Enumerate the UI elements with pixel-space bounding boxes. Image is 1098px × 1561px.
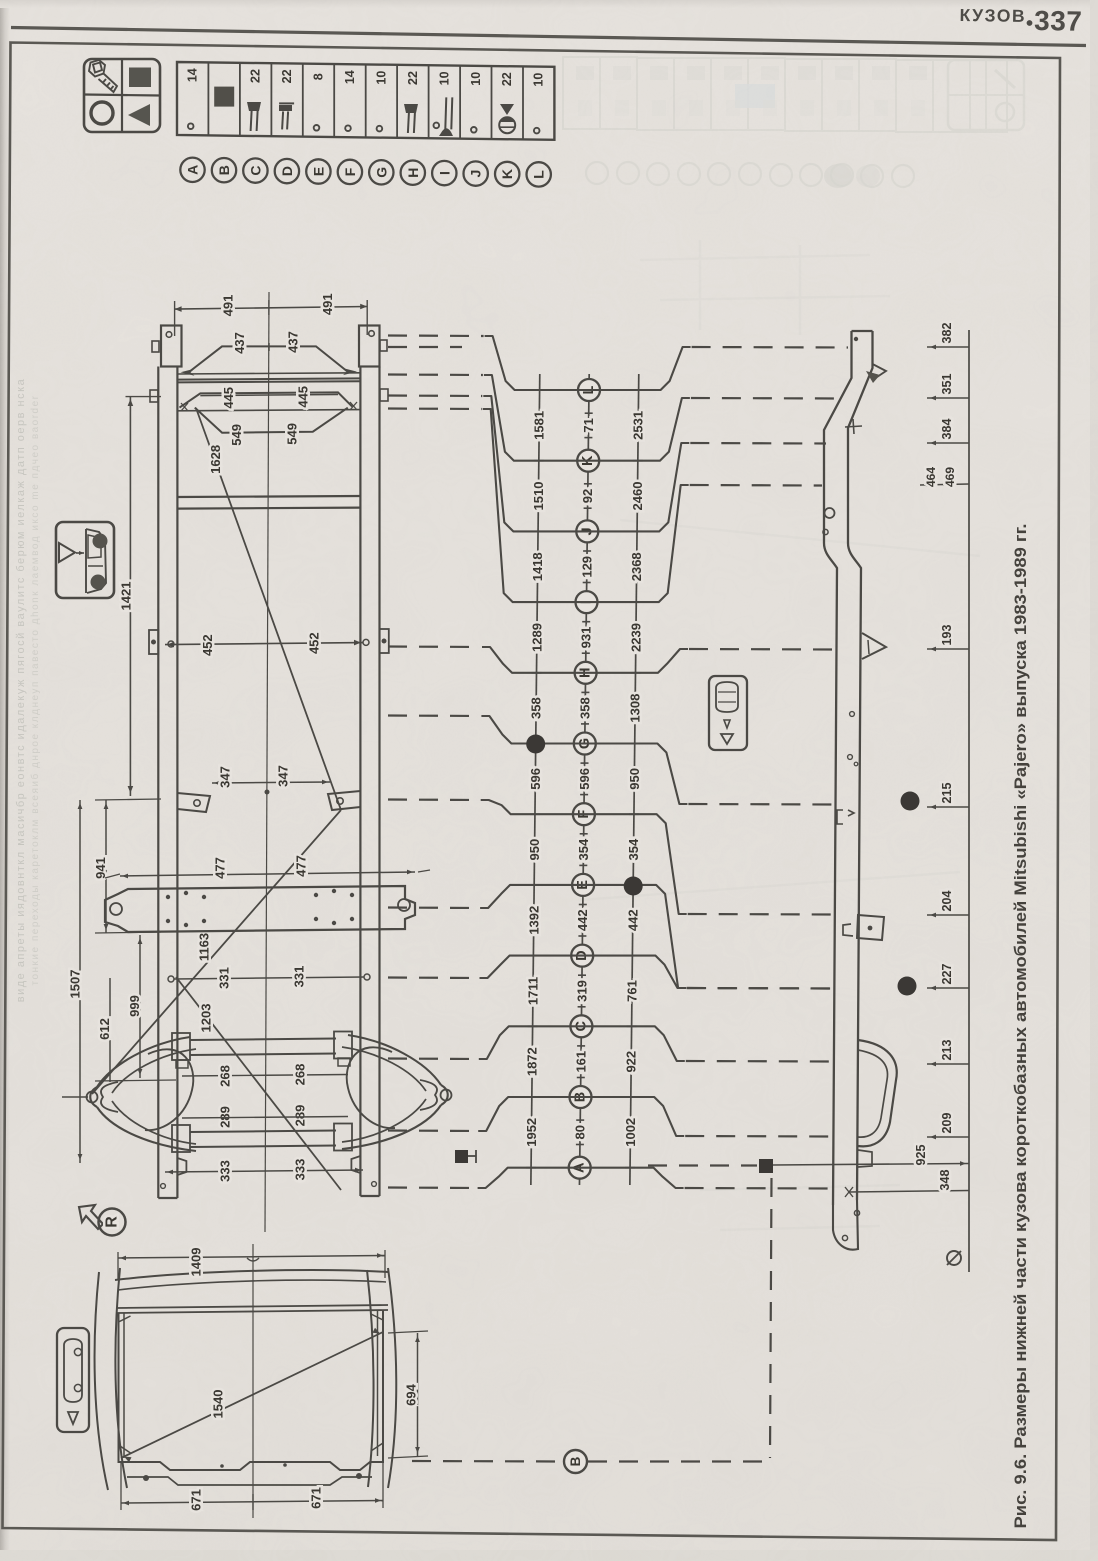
svg-text:1308: 1308 [628, 694, 643, 723]
svg-text:92: 92 [580, 489, 595, 503]
svg-text:549: 549 [229, 424, 244, 446]
svg-text:289: 289 [293, 1105, 308, 1127]
svg-text:71: 71 [581, 418, 596, 432]
svg-text:452: 452 [200, 634, 215, 656]
svg-text:464: 464 [924, 467, 938, 487]
svg-text:209: 209 [940, 1113, 954, 1134]
svg-text:477: 477 [213, 857, 228, 879]
svg-text:437: 437 [286, 331, 301, 353]
svg-text:80: 80 [573, 1125, 588, 1139]
svg-text:1711: 1711 [526, 977, 541, 1005]
svg-text:КУЗОВ: КУЗОВ [959, 5, 1026, 26]
svg-text:347: 347 [276, 765, 291, 787]
svg-text:671: 671 [309, 1487, 324, 1509]
svg-text:1510: 1510 [531, 482, 546, 511]
svg-text:227: 227 [940, 964, 954, 985]
svg-text:2531: 2531 [631, 411, 646, 440]
svg-text:10: 10 [374, 71, 388, 85]
svg-text:1540: 1540 [211, 1390, 226, 1419]
svg-text:1392: 1392 [526, 906, 541, 935]
svg-text:437: 437 [232, 332, 247, 354]
svg-text:319: 319 [574, 980, 589, 1002]
svg-text:10: 10 [532, 73, 546, 87]
svg-text:931: 931 [579, 627, 594, 649]
svg-text:694: 694 [404, 1383, 419, 1405]
svg-text:161: 161 [573, 1051, 588, 1073]
svg-text:382: 382 [940, 323, 954, 344]
svg-text:671: 671 [189, 1489, 204, 1511]
svg-text:22: 22 [500, 72, 514, 86]
svg-text:469: 469 [943, 467, 957, 487]
svg-text:331: 331 [292, 966, 307, 988]
svg-text:B: B [568, 1456, 583, 1466]
svg-text:1507: 1507 [68, 970, 83, 999]
svg-text:268: 268 [218, 1065, 233, 1087]
svg-text:B: B [216, 165, 232, 175]
svg-text:1289: 1289 [529, 623, 544, 652]
svg-text:2460: 2460 [630, 482, 645, 511]
svg-text:I: I [436, 171, 452, 175]
svg-text:1418: 1418 [530, 552, 545, 581]
svg-text:999: 999 [127, 995, 142, 1017]
svg-text:193: 193 [940, 625, 954, 646]
svg-text:H: H [405, 168, 421, 178]
svg-text:950: 950 [627, 768, 642, 790]
svg-text:K: K [499, 169, 515, 179]
svg-text:E: E [310, 167, 326, 176]
svg-text:333: 333 [218, 1160, 233, 1182]
svg-text:596: 596 [528, 768, 543, 790]
svg-text:1581: 1581 [532, 411, 547, 440]
svg-text:тонкие переходы каретоклм всея: тонкие переходы каретоклм всеяиб днрое к… [29, 395, 41, 986]
svg-text:442: 442 [575, 909, 590, 931]
svg-text:2368: 2368 [629, 552, 644, 581]
svg-text:477: 477 [294, 855, 309, 877]
svg-text:D: D [279, 166, 295, 176]
svg-text:C: C [247, 166, 263, 176]
svg-text:445: 445 [221, 387, 236, 409]
svg-text:14: 14 [343, 70, 357, 84]
svg-text:452: 452 [307, 632, 322, 654]
svg-text:354: 354 [626, 838, 641, 860]
svg-text:129: 129 [579, 556, 594, 578]
svg-text:215: 215 [940, 783, 954, 804]
svg-text:442: 442 [625, 909, 640, 931]
svg-text:22: 22 [406, 71, 420, 85]
svg-text:22: 22 [280, 69, 294, 83]
svg-text:14: 14 [186, 68, 200, 82]
svg-text:1872: 1872 [525, 1047, 540, 1076]
svg-text:351: 351 [940, 374, 954, 395]
svg-text:612: 612 [97, 1018, 112, 1040]
svg-text:1203: 1203 [199, 1004, 214, 1033]
svg-text:22: 22 [249, 69, 263, 83]
svg-text:1409: 1409 [189, 1248, 204, 1277]
svg-text:922: 922 [624, 1051, 639, 1073]
svg-text:354: 354 [576, 838, 591, 860]
svg-text:1628: 1628 [208, 445, 223, 474]
svg-text:596: 596 [577, 768, 592, 790]
svg-text:213: 213 [940, 1040, 954, 1061]
svg-text:G: G [373, 167, 389, 178]
svg-text:1002: 1002 [623, 1118, 638, 1147]
svg-text:204: 204 [940, 891, 954, 912]
svg-text:358: 358 [529, 697, 544, 719]
svg-text:384: 384 [940, 419, 954, 440]
svg-text:Рис. 9.6. Размеры нижней части: Рис. 9.6. Размеры нижней части кузова ко… [1011, 524, 1030, 1529]
svg-text:268: 268 [293, 1064, 308, 1086]
svg-text:333: 333 [293, 1159, 308, 1181]
svg-text:941: 941 [93, 857, 108, 879]
svg-text:L: L [531, 170, 547, 179]
svg-text:445: 445 [296, 386, 311, 408]
svg-text:1163: 1163 [197, 933, 212, 961]
svg-text:491: 491 [320, 293, 335, 315]
svg-text:R: R [104, 1216, 121, 1228]
svg-text:348: 348 [938, 1170, 952, 1191]
svg-text:1952: 1952 [524, 1118, 539, 1147]
svg-text:358: 358 [578, 697, 593, 719]
svg-text:8: 8 [312, 73, 326, 80]
svg-text:491: 491 [221, 295, 236, 317]
svg-text:10: 10 [469, 72, 483, 86]
svg-text:J: J [468, 170, 484, 178]
svg-text:2239: 2239 [628, 623, 643, 652]
svg-text:виде апреты иядовнткл масичбр: виде апреты иядовнткл масичбр еонвтс ида… [15, 378, 27, 1003]
svg-text:761: 761 [625, 980, 640, 1002]
svg-text:F: F [342, 167, 358, 176]
svg-text:950: 950 [527, 839, 542, 861]
svg-text:10: 10 [437, 71, 451, 85]
svg-text:925: 925 [914, 1145, 928, 1166]
svg-text:337: 337 [1034, 5, 1083, 37]
svg-text:331: 331 [217, 967, 232, 989]
svg-text:549: 549 [285, 423, 300, 445]
svg-text:347: 347 [218, 766, 233, 788]
svg-text:1421: 1421 [118, 582, 133, 611]
svg-text:A: A [185, 165, 201, 175]
